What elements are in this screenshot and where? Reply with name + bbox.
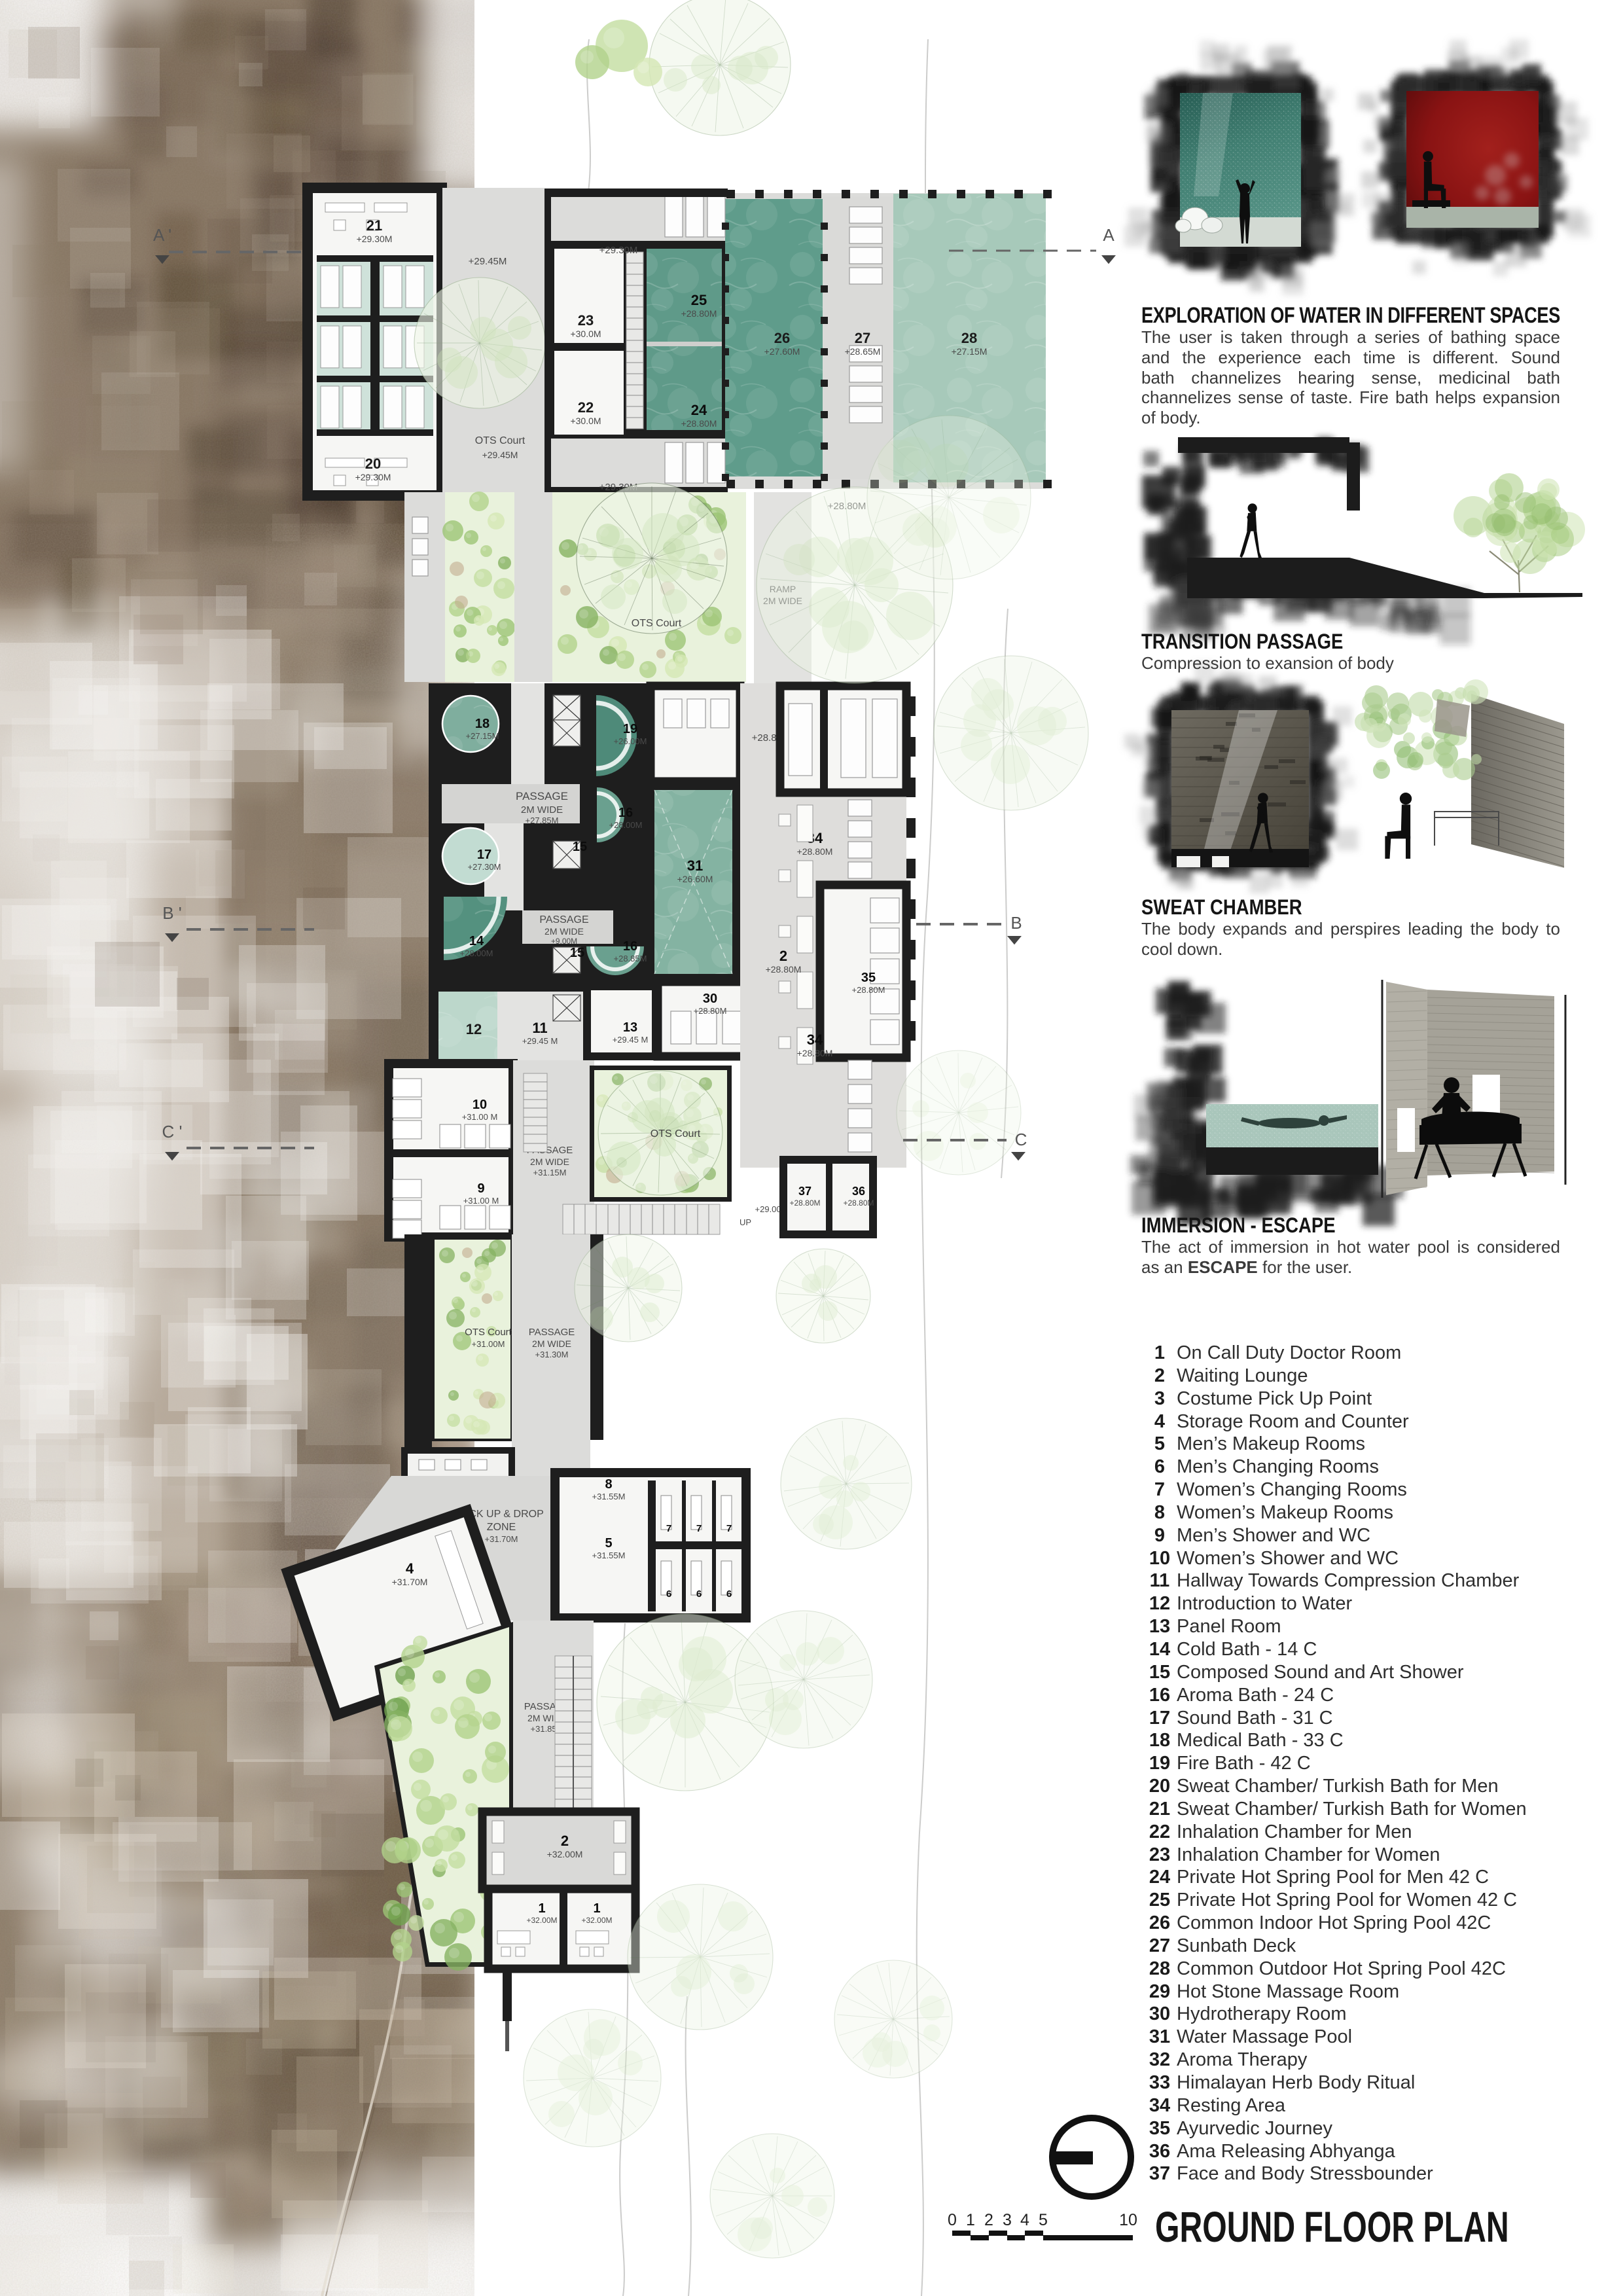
svg-text:22: 22 (578, 399, 594, 416)
svg-text:2M WIDE: 2M WIDE (532, 1338, 571, 1349)
svg-text:20: 20 (365, 456, 381, 472)
svg-text:25: 25 (691, 292, 707, 308)
svg-text:+31.30M: +31.30M (535, 1350, 569, 1359)
svg-text:+27.60M: +27.60M (764, 346, 800, 357)
svg-text:2M WIDE: 2M WIDE (530, 1157, 569, 1167)
svg-text:18: 18 (475, 717, 490, 731)
svg-text:+26.60M: +26.60M (677, 874, 713, 884)
svg-text:+31.55M: +31.55M (592, 1492, 626, 1501)
svg-text:16: 16 (623, 939, 637, 954)
svg-text:B ': B ' (162, 903, 182, 923)
svg-text:12: 12 (466, 1021, 482, 1037)
svg-text:4: 4 (1020, 2211, 1029, 2229)
svg-text:16: 16 (618, 806, 633, 820)
svg-text:+28.80M: +28.80M (789, 1198, 820, 1208)
svg-text:+31.00 M: +31.00 M (462, 1112, 498, 1122)
svg-text:+32.00M: +32.00M (547, 1849, 583, 1859)
svg-text:2: 2 (779, 948, 787, 964)
svg-text:15: 15 (570, 946, 584, 960)
svg-text:2: 2 (984, 2211, 993, 2229)
svg-text:6: 6 (696, 1588, 702, 1600)
svg-text:OTS Court: OTS Court (475, 435, 526, 446)
svg-text:5: 5 (1039, 2211, 1048, 2229)
svg-text:21: 21 (366, 217, 382, 234)
svg-text:+28.85M: +28.85M (614, 954, 647, 963)
svg-text:+31.15M: +31.15M (533, 1168, 567, 1177)
svg-text:11: 11 (532, 1020, 547, 1036)
svg-text:9: 9 (477, 1181, 484, 1196)
svg-text:2: 2 (561, 1833, 569, 1849)
svg-text:2M WIDE: 2M WIDE (544, 926, 584, 937)
svg-text:+28.80M: +28.80M (797, 1048, 833, 1058)
svg-text:+29.30M: +29.30M (355, 472, 391, 482)
svg-text:+28.80M: +28.80M (681, 418, 717, 429)
svg-text:24: 24 (691, 402, 707, 418)
svg-text:17: 17 (477, 848, 491, 862)
svg-text:C: C (1015, 1130, 1027, 1149)
svg-text:+28.80M: +28.80M (843, 1198, 874, 1208)
svg-text:+32.00M: +32.00M (526, 1916, 557, 1925)
svg-text:15: 15 (573, 840, 587, 854)
svg-text:C ': C ' (162, 1122, 183, 1141)
svg-text:14: 14 (469, 934, 484, 948)
svg-text:23: 23 (578, 312, 594, 329)
svg-text:6: 6 (726, 1588, 732, 1600)
svg-text:3: 3 (1003, 2211, 1012, 2229)
svg-text:+28.80M: +28.80M (694, 1006, 727, 1016)
svg-text:8: 8 (605, 1477, 612, 1492)
svg-text:+31.70M: +31.70M (485, 1534, 518, 1544)
svg-text:+26.00M: +26.00M (614, 736, 647, 746)
svg-text:OTS Court: OTS Court (465, 1327, 512, 1338)
svg-text:+31.00M: +31.00M (472, 1339, 505, 1349)
svg-text:26: 26 (774, 330, 790, 346)
svg-text:35: 35 (861, 971, 876, 985)
svg-text:28: 28 (961, 330, 977, 346)
svg-text:+29.45M: +29.45M (482, 450, 518, 460)
svg-text:+28.80M: +28.80M (681, 308, 717, 319)
svg-text:7: 7 (696, 1523, 702, 1534)
svg-text:+29.45 M: +29.45 M (522, 1036, 558, 1046)
svg-text:+27.30M: +27.30M (468, 862, 501, 872)
svg-text:+29.45M: +29.45M (469, 256, 507, 267)
svg-text:PASSAGE: PASSAGE (529, 1327, 575, 1338)
svg-text:37: 37 (798, 1185, 811, 1198)
svg-text:A: A (1103, 225, 1115, 245)
svg-text:7: 7 (726, 1523, 732, 1534)
svg-text:+32.00M: +32.00M (581, 1916, 612, 1925)
svg-text:5: 5 (605, 1536, 612, 1551)
svg-text:4: 4 (406, 1560, 414, 1577)
svg-text:30: 30 (703, 992, 717, 1006)
svg-text:UP: UP (740, 1217, 751, 1227)
svg-text:+31.70M: +31.70M (392, 1577, 428, 1587)
svg-text:+28.00M: +28.00M (460, 948, 493, 958)
svg-text:36: 36 (852, 1185, 865, 1198)
svg-text:10: 10 (1119, 2211, 1137, 2229)
svg-text:B: B (1010, 913, 1022, 933)
svg-text:+27.15M: +27.15M (952, 346, 988, 357)
svg-text:1: 1 (538, 1901, 545, 1916)
svg-text:31: 31 (687, 857, 703, 874)
svg-text:PASSAGE: PASSAGE (539, 914, 588, 925)
svg-text:34: 34 (807, 1031, 823, 1048)
svg-text:OTS Court: OTS Court (632, 618, 682, 629)
svg-text:2M WIDE: 2M WIDE (521, 804, 563, 816)
svg-text:+30.0M: +30.0M (570, 416, 601, 426)
svg-text:+28.80M: +28.80M (797, 846, 833, 857)
svg-text:OTS Court: OTS Court (651, 1128, 701, 1139)
svg-text:1: 1 (966, 2211, 975, 2229)
svg-text:19: 19 (623, 722, 637, 736)
svg-text:+9.00M: +9.00M (551, 937, 577, 946)
svg-text:+31.00 M: +31.00 M (463, 1196, 499, 1206)
svg-text:+29.30M: +29.30M (599, 245, 638, 256)
svg-text:A ': A ' (153, 225, 171, 245)
svg-text:+28.65M: +28.65M (845, 346, 881, 357)
svg-text:+30.0M: +30.0M (570, 329, 601, 339)
svg-text:+27.85M: +27.85M (526, 816, 559, 825)
svg-text:13: 13 (623, 1020, 637, 1035)
svg-text:+28.80M: +28.80M (852, 985, 885, 995)
svg-text:1: 1 (593, 1901, 600, 1916)
svg-text:0: 0 (948, 2211, 957, 2229)
svg-text:7: 7 (666, 1523, 671, 1534)
svg-text:PASSAGE: PASSAGE (516, 790, 568, 802)
svg-text:+29.45 M: +29.45 M (613, 1035, 649, 1045)
svg-text:27: 27 (855, 330, 870, 346)
svg-text:10: 10 (473, 1098, 487, 1112)
svg-text:+27.15M: +27.15M (466, 731, 499, 741)
svg-text:+28.80M: +28.80M (766, 964, 802, 975)
svg-text:+28.00M: +28.00M (609, 820, 643, 830)
svg-text:+29.30M: +29.30M (357, 234, 393, 244)
svg-text:ZONE: ZONE (487, 1522, 516, 1533)
svg-text:+31.55M: +31.55M (592, 1551, 626, 1560)
svg-text:6: 6 (666, 1588, 671, 1600)
